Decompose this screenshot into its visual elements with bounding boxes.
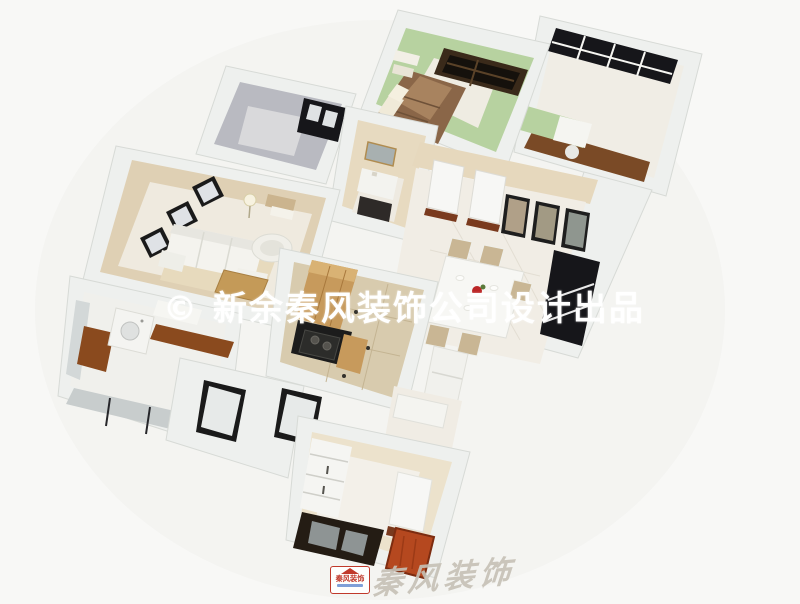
living-lamp-stem	[249, 206, 250, 218]
kitchen-tile-dot-3	[366, 346, 370, 350]
washing-machine-knob	[141, 320, 144, 323]
logo-house-roof-icon	[341, 568, 359, 574]
copyright-watermark: © 新余秦风装饰公司设计出品	[163, 281, 800, 330]
washing-machine-door	[121, 322, 139, 340]
dining-plate-1	[456, 276, 464, 281]
kitchen-burner-1	[311, 336, 319, 344]
hallway-door-1	[427, 160, 464, 214]
living-floor-lamp	[244, 194, 256, 206]
hallway-door-2	[469, 170, 506, 224]
logo-url-smudge	[337, 584, 363, 587]
study-chair	[565, 145, 579, 159]
kitchen-tile-dot-4	[342, 374, 346, 378]
logo-badge-text: 秦风装饰	[336, 574, 365, 582]
company-logo-badge: 秦风装饰	[330, 566, 370, 594]
kitchen-burner-2	[323, 342, 331, 350]
